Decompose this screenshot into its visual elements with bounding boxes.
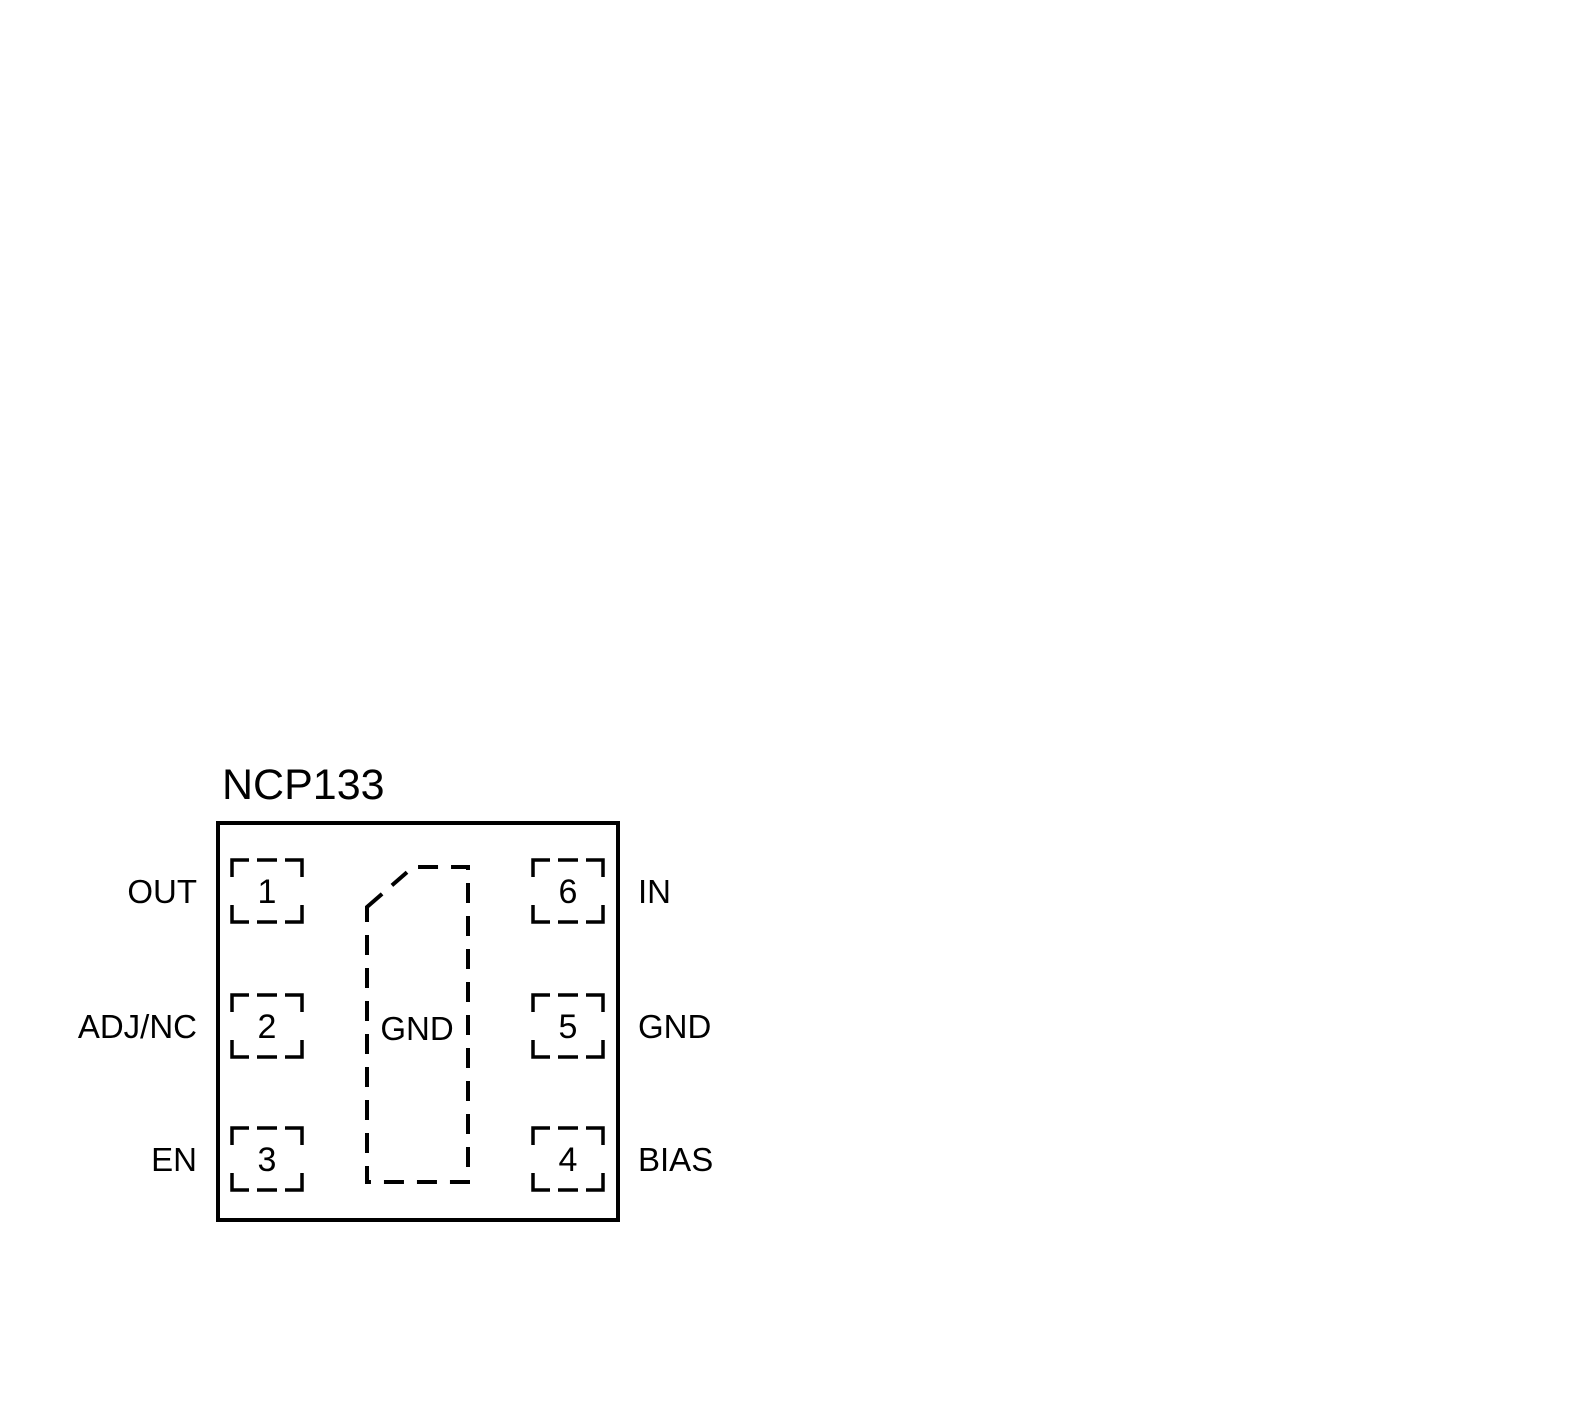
pin-5-label: GND — [638, 1008, 711, 1045]
pin-5-number: 5 — [559, 1008, 578, 1046]
pin-1-label: OUT — [127, 873, 197, 910]
pin-4-number: 4 — [559, 1141, 578, 1179]
pin-6: 6 — [533, 860, 603, 922]
pin-3-label: EN — [151, 1141, 197, 1178]
pin-6-label: IN — [638, 873, 671, 910]
pin-4-label: BIAS — [638, 1141, 713, 1178]
pin-1: 1 — [232, 860, 302, 922]
pin-1-number: 1 — [258, 873, 277, 911]
pin-4: 4 — [533, 1128, 603, 1190]
pin-2-number: 2 — [258, 1008, 277, 1046]
chip-title: NCP133 — [222, 761, 385, 809]
pin-5: 5 — [533, 995, 603, 1057]
exposed-pad: GND — [367, 867, 468, 1182]
exposed-pad-label: GND — [380, 1010, 453, 1047]
pin-2: 2 — [232, 995, 302, 1057]
pin-3-number: 3 — [258, 1141, 277, 1179]
pinout-diagram-svg: NCP133 GND 1 OUT 2 ADJ/NC 3 EN 6 — [0, 0, 1569, 1417]
pin-2-label: ADJ/NC — [78, 1008, 197, 1045]
pin-6-number: 6 — [559, 873, 578, 911]
pinout-figure: NCP133 GND 1 OUT 2 ADJ/NC 3 EN 6 — [0, 0, 1569, 1417]
pin-3: 3 — [232, 1128, 302, 1190]
